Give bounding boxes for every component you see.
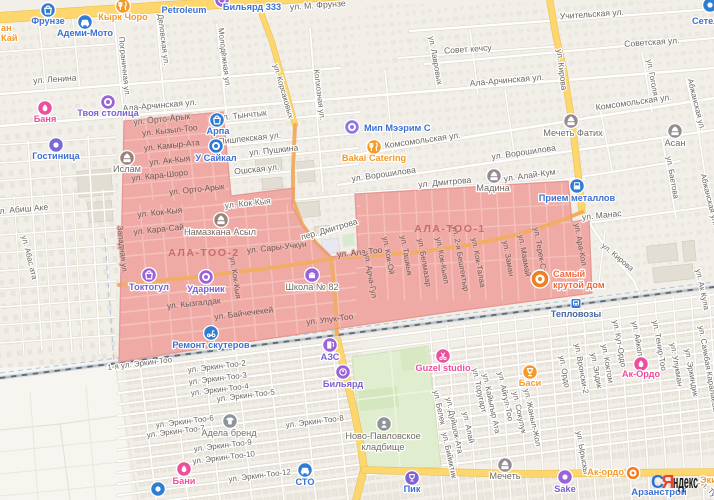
svg-text:Самый: Самый [553, 269, 585, 279]
svg-text:ндекс: ндекс [673, 472, 698, 492]
svg-text:АЛА-ТОО-1: АЛА-ТОО-1 [414, 223, 485, 235]
svg-text:Фрунзе: Фрунзе [31, 16, 65, 26]
svg-text:ан: ан [1, 23, 12, 33]
svg-text:Мип Мээрим С: Мип Мээрим С [364, 123, 431, 133]
svg-text:Ново-Павловское: Ново-Павловское [345, 431, 420, 441]
svg-text:Адела бренд: Адела бренд [201, 428, 257, 438]
svg-text:У Сайкал: У Сайкал [195, 153, 236, 163]
svg-text:Адеми-Мото: Адеми-Мото [57, 28, 113, 38]
svg-text:крутой дом: крутой дом [553, 280, 605, 290]
svg-text:Мечеть: Мечеть [489, 471, 520, 481]
svg-text:Намазкана Асыл: Намазкана Асыл [184, 227, 256, 237]
svg-text:Ударник: Ударник [187, 284, 225, 294]
svg-text:Ислам: Ислам [113, 164, 141, 174]
svg-text:Bakai Catering: Bakai Catering [342, 153, 406, 163]
svg-text:Ак-Ордо: Ак-Ордо [622, 369, 661, 379]
svg-text:Экипаж: Экипаж [700, 475, 714, 485]
svg-text:Guzel studio: Guzel studio [415, 363, 471, 373]
svg-text:Ак-ордо: Ак-ордо [587, 467, 624, 477]
svg-text:Petroleum: Petroleum [162, 5, 207, 15]
svg-text:Мадина: Мадина [476, 183, 510, 193]
svg-text:кладбище: кладбище [362, 442, 405, 452]
svg-text:Пик: Пик [404, 484, 421, 494]
svg-text:Бильярд 333: Бильярд 333 [223, 2, 281, 12]
svg-text:СТО: СТО [296, 477, 315, 487]
svg-text:Тепловозы: Тепловозы [551, 309, 602, 319]
svg-text:Мечеть Фатих: Мечеть Фатих [543, 128, 603, 138]
svg-text:АЛА-ТОО-2: АЛА-ТОО-2 [168, 247, 239, 259]
svg-text:Асан: Асан [665, 138, 686, 148]
svg-text:Ремонт скутеров: Ремонт скутеров [172, 340, 250, 350]
svg-text:Бильярд: Бильярд [323, 379, 363, 389]
svg-text:Баня: Баня [34, 114, 57, 124]
svg-text:Бани: Бани [173, 476, 196, 486]
svg-text:Гостиница: Гостиница [32, 151, 80, 161]
svg-text:Прием металлов: Прием металлов [539, 193, 616, 203]
svg-text:Токтогул: Токтогул [129, 282, 169, 292]
svg-text:Баси: Баси [519, 378, 542, 388]
svg-text:Кырк Чоро: Кырк Чоро [98, 12, 148, 22]
svg-text:Твоя столица: Твоя столица [77, 108, 139, 118]
svg-text:Арпа: Арпа [207, 126, 231, 136]
svg-text:Школа № 82: Школа № 82 [285, 282, 338, 292]
svg-text:Сетелеком: Сетелеком [692, 16, 714, 26]
svg-text:Кай: Кай [1, 33, 18, 43]
svg-text:Sake: Sake [554, 484, 575, 494]
svg-text:АЗС: АЗС [321, 352, 340, 362]
